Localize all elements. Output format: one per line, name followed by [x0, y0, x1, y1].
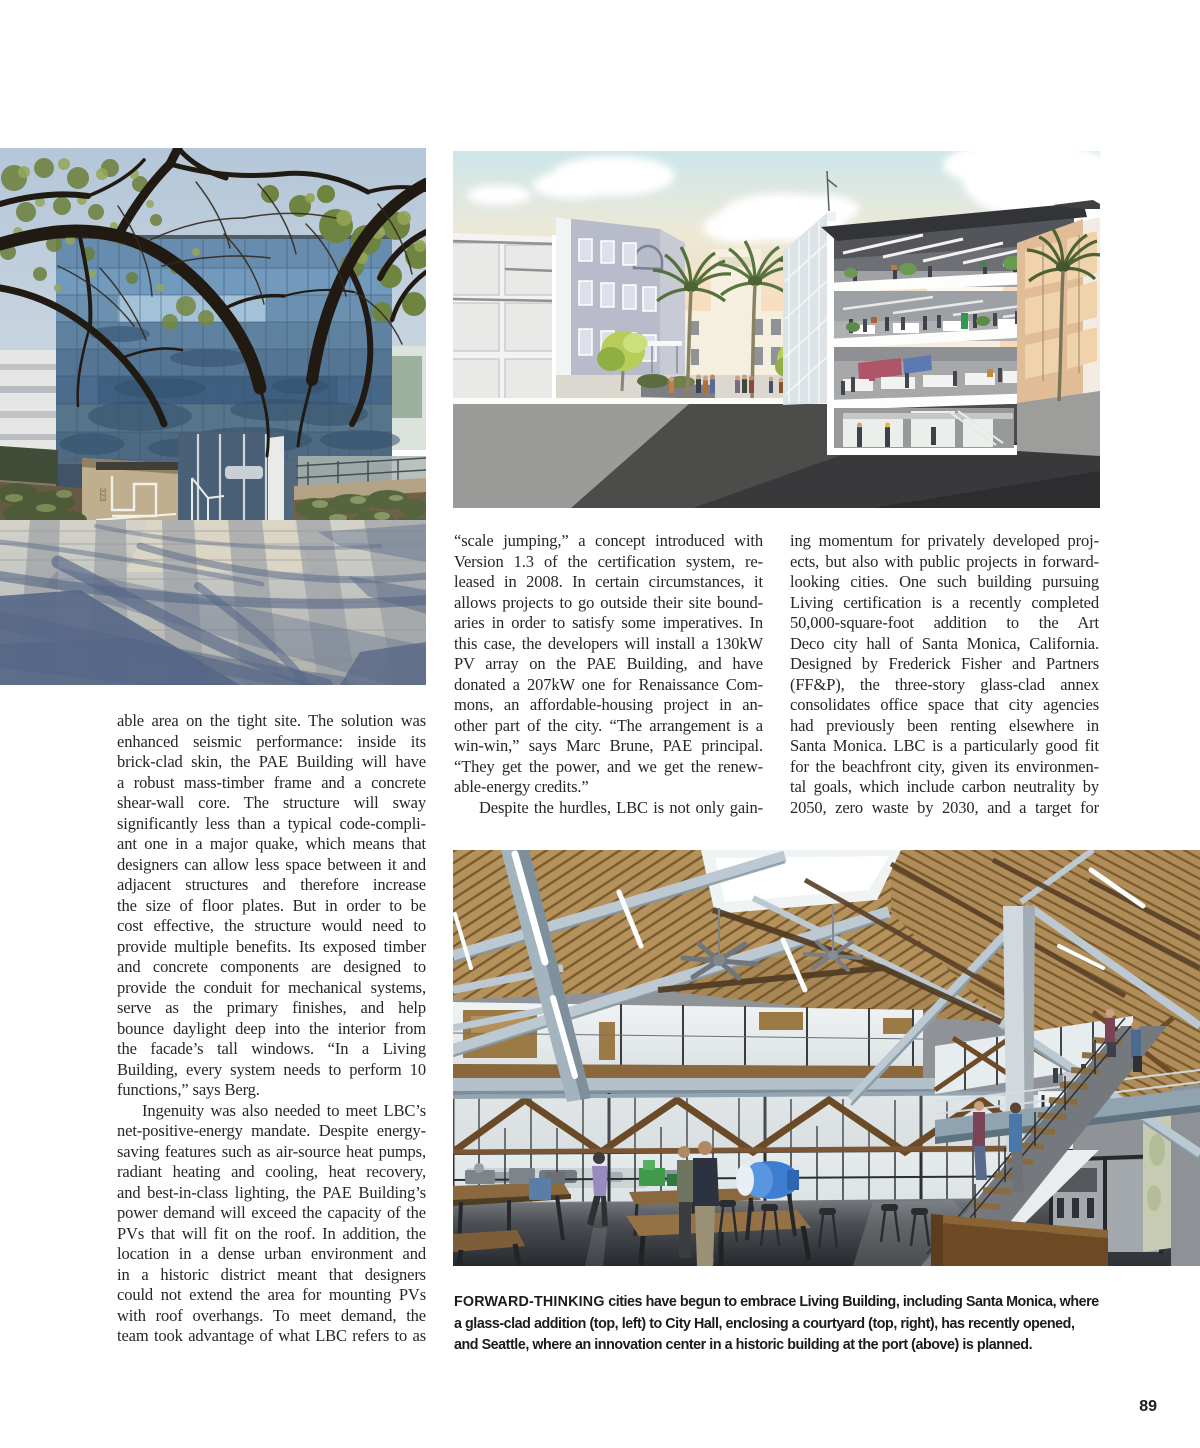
svg-text:323: 323	[98, 488, 107, 502]
